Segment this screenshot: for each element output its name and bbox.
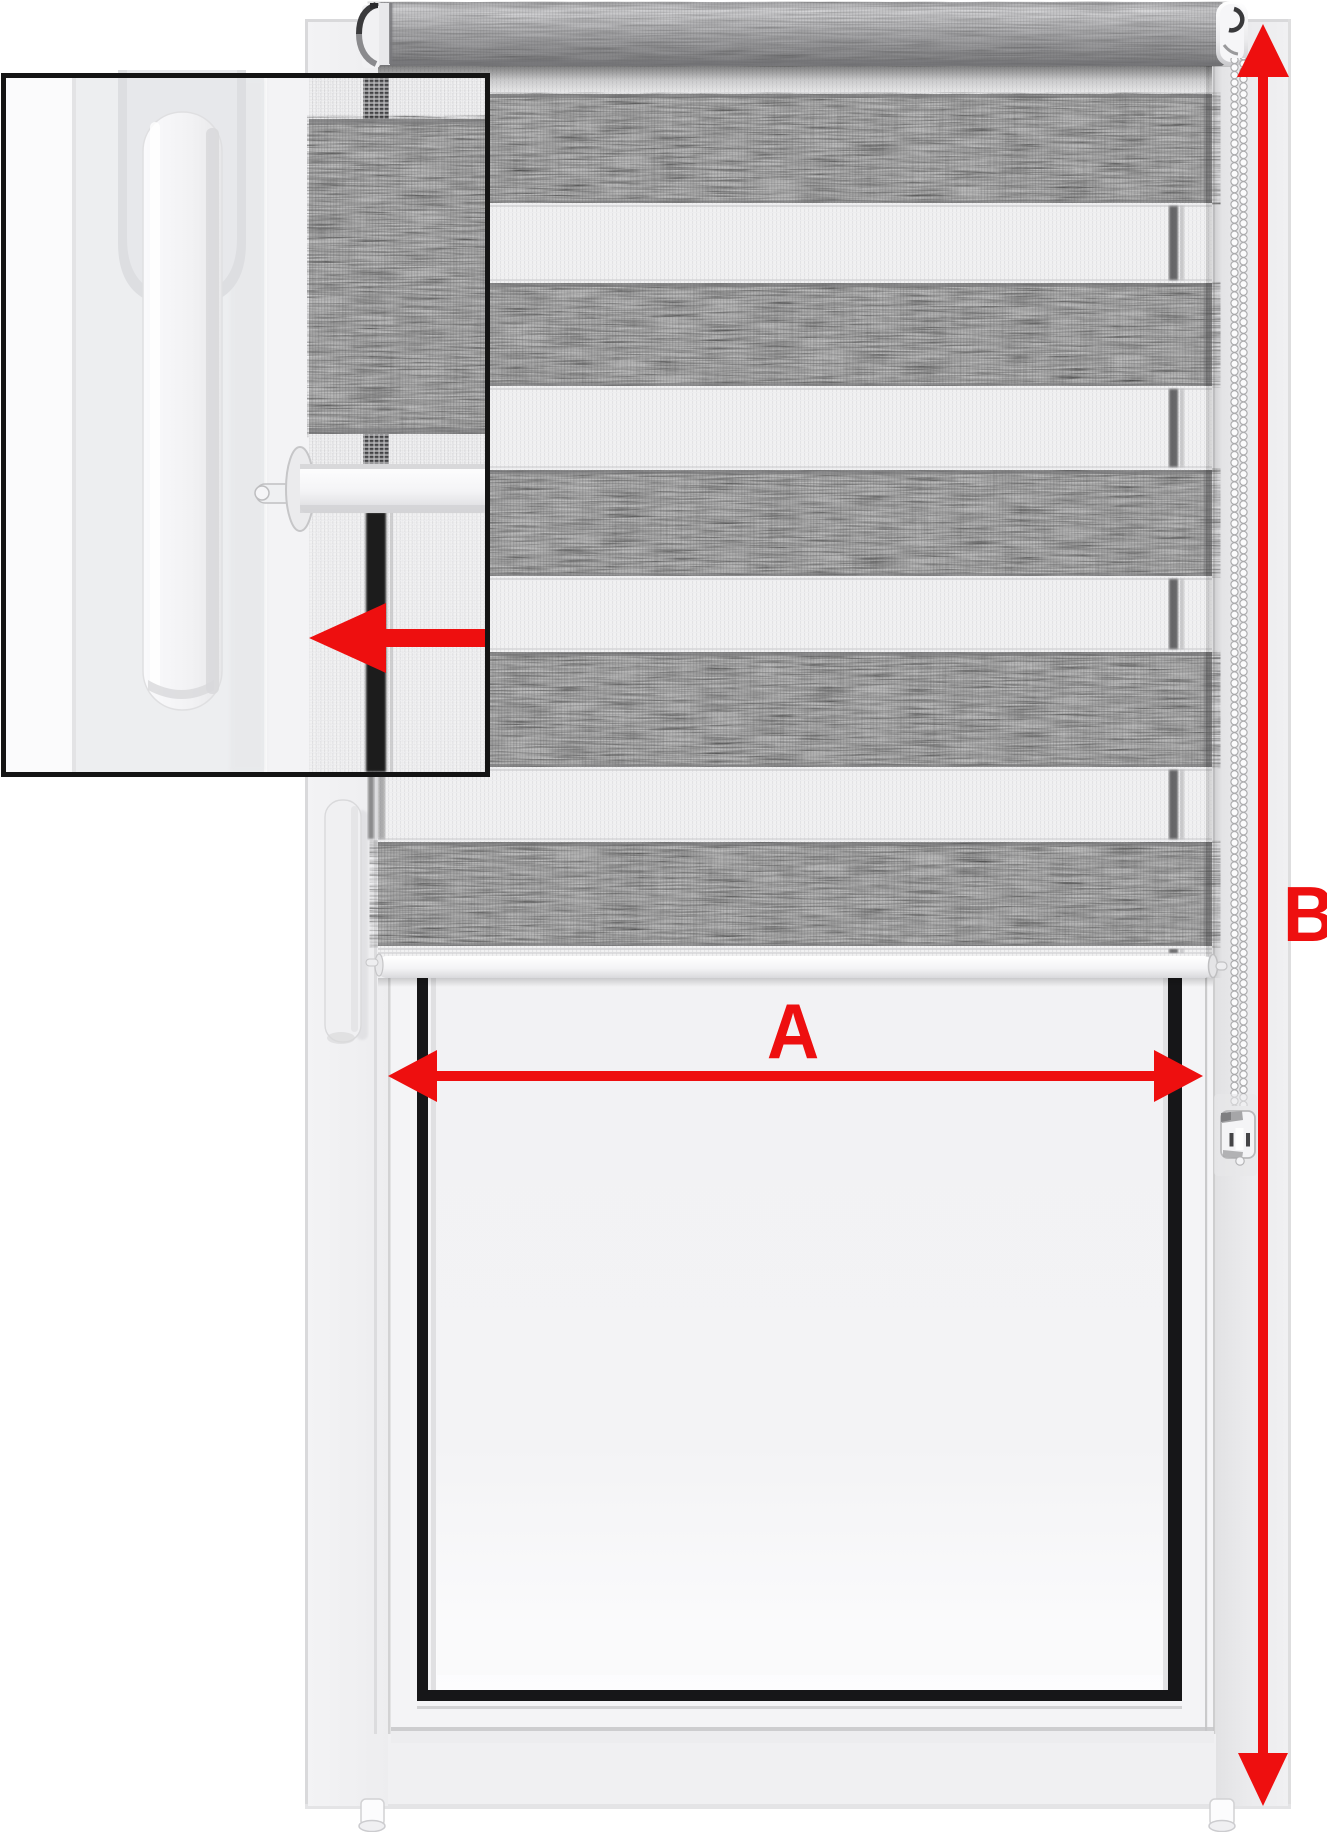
svg-text:B: B bbox=[1283, 871, 1327, 958]
svg-text:A: A bbox=[767, 988, 819, 1075]
